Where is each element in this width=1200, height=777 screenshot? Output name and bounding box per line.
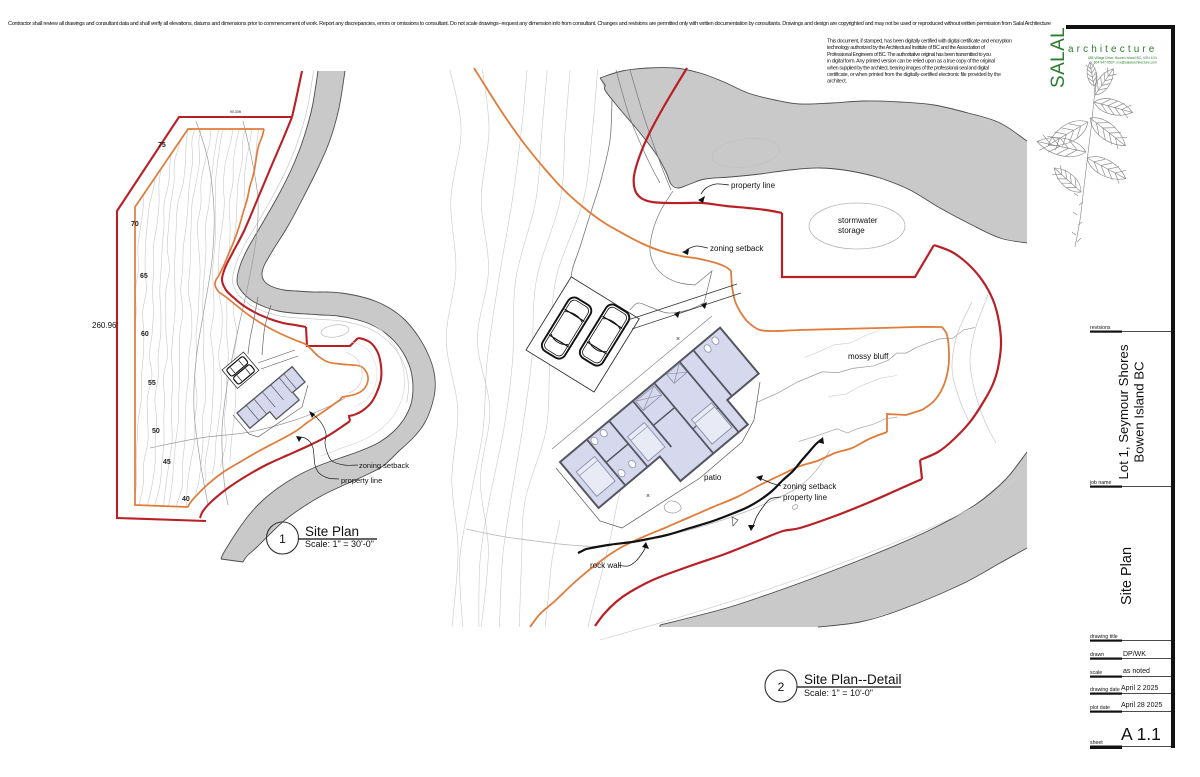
svg-text:SALAL: SALAL [1048, 27, 1069, 88]
svg-text:70: 70 [131, 221, 139, 228]
svg-text:architect.: architect. [827, 79, 847, 85]
svg-text:as noted: as noted [1123, 668, 1150, 675]
svg-text:260.96': 260.96' [92, 321, 118, 330]
svg-text:zoning setback: zoning setback [783, 482, 837, 491]
svg-text:90.33ft: 90.33ft [230, 110, 241, 114]
svg-text:drawing title: drawing title [1090, 634, 1118, 640]
svg-text:485 Village Drive, Bowen Islan: 485 Village Drive, Bowen Island BC, V0N … [1088, 56, 1157, 60]
svg-text:when supplied by the architect: when supplied by the architect, bearing … [826, 65, 989, 71]
svg-text:property line: property line [783, 493, 828, 502]
svg-text:55: 55 [148, 380, 156, 387]
svg-text:2: 2 [778, 680, 785, 694]
svg-text:job name: job name [1089, 480, 1111, 486]
svg-text:Professional Engineers of BC.: Professional Engineers of BC. The author… [827, 52, 991, 58]
svg-text:Lot 1, Seymour ShoresBowen Isl: Lot 1, Seymour ShoresBowen Island BC [1116, 344, 1147, 479]
svg-text:Scale: 1" = 10'-0": Scale: 1" = 10'-0" [804, 688, 873, 698]
svg-text:storage: storage [838, 226, 865, 235]
svg-text:rock wall: rock wall [590, 561, 621, 570]
svg-text:plot date: plot date [1090, 705, 1110, 711]
svg-text:40: 40 [182, 496, 190, 503]
svg-text:sheet: sheet [1090, 740, 1103, 746]
svg-text:stormwater: stormwater [838, 216, 878, 225]
svg-text:×: × [676, 336, 680, 343]
svg-text:property line: property line [341, 476, 382, 485]
svg-text:1: 1 [279, 532, 286, 546]
svg-text:×: × [646, 493, 650, 500]
svg-text:60: 60 [141, 331, 149, 338]
svg-text:drawn: drawn [1090, 652, 1104, 658]
svg-text:technology authorized by the A: technology authorized by the Architectur… [827, 45, 986, 51]
svg-text:revisions: revisions [1090, 325, 1111, 331]
svg-text:Scale: 1" = 30'-0": Scale: 1" = 30'-0" [305, 539, 374, 549]
svg-text:Site Plan--Detail: Site Plan--Detail [804, 672, 902, 687]
svg-text:scale: scale [1090, 670, 1102, 676]
svg-text:April 28 2025: April 28 2025 [1121, 702, 1162, 709]
svg-text:patio: patio [704, 473, 722, 482]
svg-text:A 1.1: A 1.1 [1121, 724, 1161, 744]
svg-text:certificate, or when printed f: certificate, or when printed from the di… [827, 72, 1001, 78]
svg-text:This document, if stamped, has: This document, if stamped, has been digi… [827, 39, 1012, 45]
svg-text:Site Plan: Site Plan [1119, 547, 1135, 605]
svg-text:45: 45 [163, 459, 171, 466]
svg-text:April 2 2025: April 2 2025 [1121, 685, 1158, 692]
svg-text:zoning setback: zoning setback [359, 461, 409, 470]
svg-text:property line: property line [731, 181, 776, 190]
svg-text:75: 75 [158, 142, 166, 149]
svg-text:in digital form. Any printed v: in digital form. Any printed version can… [827, 59, 995, 65]
svg-text:drawing date: drawing date [1090, 687, 1120, 693]
svg-text:50: 50 [152, 428, 160, 435]
svg-text:p: 604 947-0537, xxx@salalarch: p: 604 947-0537, xxx@salalarchitecture.c… [1090, 61, 1157, 65]
svg-text:mossy bluff: mossy bluff [848, 352, 889, 361]
svg-text:Contractor shall review all dr: Contractor shall review all drawings and… [8, 21, 1051, 27]
svg-text:Site Plan: Site Plan [305, 524, 359, 539]
svg-text:65: 65 [140, 273, 148, 280]
svg-text:DP/WK: DP/WK [1123, 651, 1146, 658]
svg-text:zoning setback: zoning setback [710, 244, 764, 253]
svg-text:architecture: architecture [1068, 44, 1157, 55]
